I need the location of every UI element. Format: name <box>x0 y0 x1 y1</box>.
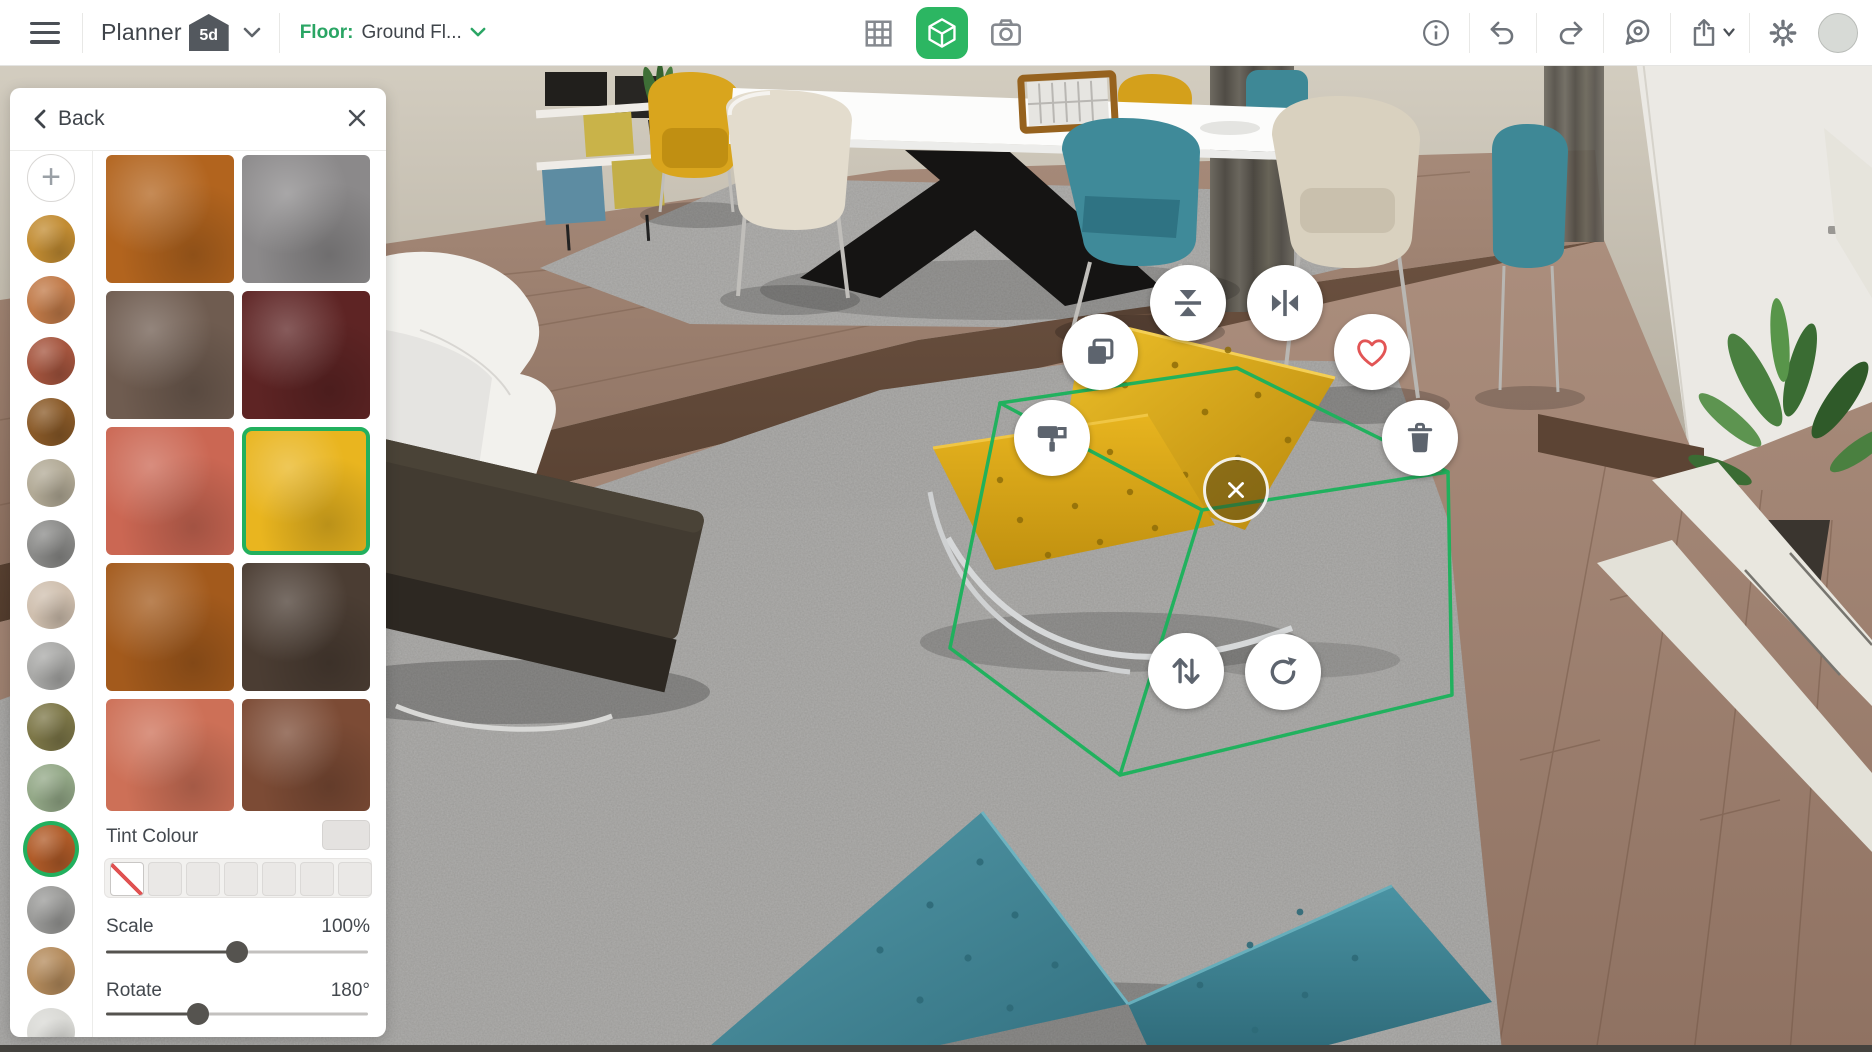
divider <box>82 13 83 53</box>
texture-swatch-maroon-leather[interactable] <box>242 291 370 419</box>
rotate-value: 180° <box>331 980 370 1002</box>
divider <box>1536 13 1537 53</box>
chevron-down-icon <box>243 27 261 39</box>
rotate-slider[interactable] <box>106 1003 368 1025</box>
cube-3d-icon <box>923 14 961 52</box>
flip-vertical-button[interactable] <box>1150 265 1226 341</box>
texture-swatch-mottled-brown-leather[interactable] <box>242 699 370 811</box>
rotate-label: Rotate <box>106 980 162 1002</box>
panel-close-button[interactable] <box>340 105 368 133</box>
divider <box>1749 13 1750 53</box>
texture-swatch-amber-leather[interactable] <box>106 563 234 691</box>
back-label: Back <box>58 107 105 131</box>
tint-swatch-tint-4[interactable] <box>224 862 258 896</box>
texture-column: + <box>10 150 93 1037</box>
texture-swatch-brown-suede[interactable] <box>106 291 234 419</box>
redo-button[interactable] <box>1551 0 1589 65</box>
camera-icon <box>987 14 1025 52</box>
rotate-button[interactable] <box>1245 634 1321 710</box>
app-badge: 5d <box>189 14 229 51</box>
info-button[interactable] <box>1417 0 1455 65</box>
texture-swatch-red-brick[interactable] <box>27 337 75 385</box>
rotate-icon <box>1264 653 1302 691</box>
divider <box>279 13 280 53</box>
texture-swatch-grey-gravel[interactable] <box>27 520 75 568</box>
tint-swatch-tint-5[interactable] <box>262 862 296 896</box>
scale-slider[interactable] <box>106 941 368 963</box>
texture-swatch-tan-leather[interactable] <box>106 155 234 283</box>
texture-swatch-gold-stucco[interactable] <box>27 215 75 263</box>
tint-swatch-tint-7[interactable] <box>338 862 372 896</box>
panel-header: Back <box>10 88 386 151</box>
texture-swatch-green-medallion[interactable] <box>27 703 75 751</box>
paint-roller-icon <box>1033 419 1071 457</box>
texture-swatch-dark-brown-leather[interactable] <box>242 563 370 691</box>
floor-selector[interactable]: Floor: Ground Fl... <box>300 22 486 44</box>
deselect-button[interactable] <box>1203 457 1269 523</box>
gear-icon <box>1766 16 1800 50</box>
slider-handle[interactable] <box>187 1003 209 1025</box>
feedback-button[interactable] <box>1618 0 1656 65</box>
slider-fill <box>106 951 237 954</box>
snapshot-button[interactable] <box>980 7 1032 59</box>
close-x-icon <box>1221 475 1251 505</box>
tint-options-row <box>104 858 372 898</box>
divider <box>1670 13 1671 53</box>
export-button[interactable] <box>1685 0 1723 65</box>
material-paint-button[interactable] <box>1014 400 1090 476</box>
info-icon <box>1419 16 1453 50</box>
back-button[interactable]: Back <box>32 107 105 131</box>
copy-icon <box>1081 333 1119 371</box>
scale-label: Scale <box>106 916 154 938</box>
texture-swatch-yellow-leather[interactable] <box>242 427 370 555</box>
floor-value: Ground Fl... <box>362 22 462 44</box>
texture-swatch-salmon-leather[interactable] <box>106 699 234 811</box>
tint-current-swatch[interactable] <box>322 820 370 850</box>
flip-horizontal-icon <box>1266 284 1304 322</box>
chevron-down-icon <box>470 27 486 38</box>
tint-swatch-tint-2[interactable] <box>148 862 182 896</box>
grid-2d-icon <box>860 15 896 51</box>
undo-button[interactable] <box>1484 0 1522 65</box>
topbar: Planner 5d Floor: Ground Fl... <box>0 0 1872 66</box>
slider-fill <box>106 1013 198 1016</box>
texture-swatch-white-marble[interactable] <box>27 1008 75 1037</box>
close-icon <box>346 107 368 129</box>
texture-swatch-pebbles[interactable] <box>27 459 75 507</box>
redo-icon <box>1553 16 1587 50</box>
flip-horizontal-button[interactable] <box>1247 265 1323 341</box>
chevron-down-icon <box>1723 28 1735 37</box>
delete-button[interactable] <box>1382 400 1458 476</box>
hamburger-icon <box>30 22 60 44</box>
profile-avatar[interactable] <box>1818 13 1858 53</box>
flip-vertical-icon <box>1169 284 1207 322</box>
view-3d-button[interactable] <box>916 7 968 59</box>
view-2d-button[interactable] <box>852 7 904 59</box>
undo-icon <box>1486 16 1520 50</box>
divider <box>1469 13 1470 53</box>
project-menu[interactable]: Planner 5d <box>101 14 279 51</box>
floor-label: Floor: <box>300 22 354 44</box>
texture-swatch-wood-planks[interactable] <box>27 398 75 446</box>
divider <box>1603 13 1604 53</box>
scale-value: 100% <box>321 916 370 938</box>
texture-swatch-beige-plaid[interactable] <box>27 581 75 629</box>
chevron-left-icon <box>32 108 48 130</box>
settings-button[interactable] <box>1764 0 1802 65</box>
app-name: Planner <box>101 19 182 46</box>
feedback-bubble-icon <box>1620 16 1654 50</box>
heart-icon <box>1353 333 1391 371</box>
material-panel: Back + Tint Colour Scale 100% Rotate 180… <box>10 88 386 1037</box>
texture-swatch-mosaic-tile[interactable] <box>27 276 75 324</box>
tint-colour-label: Tint Colour <box>106 826 198 848</box>
tint-swatch-no-tint[interactable] <box>110 862 144 896</box>
texture-swatch-grey-stone[interactable] <box>27 886 75 934</box>
move-vertical-button[interactable] <box>1148 633 1224 709</box>
trash-icon <box>1401 419 1439 457</box>
up-down-arrows-icon <box>1167 652 1205 690</box>
texture-swatch-grey-marble[interactable] <box>27 642 75 690</box>
texture-swatch-light-wood[interactable] <box>27 947 75 995</box>
texture-swatch-grey-leather[interactable] <box>242 155 370 283</box>
duplicate-button[interactable] <box>1062 314 1138 390</box>
bottom-edge-strip <box>0 1045 1872 1052</box>
texture-swatch-orange-leather[interactable] <box>27 825 75 873</box>
texture-grid <box>106 155 370 811</box>
add-texture-button[interactable]: + <box>27 154 75 202</box>
tint-swatch-tint-6[interactable] <box>300 862 334 896</box>
tint-swatch-tint-3[interactable] <box>186 862 220 896</box>
favourite-button[interactable] <box>1334 314 1410 390</box>
export-icon <box>1687 16 1721 50</box>
main-menu-button[interactable] <box>0 22 60 44</box>
texture-swatch-green-vine-stone[interactable] <box>27 764 75 812</box>
slider-handle[interactable] <box>226 941 248 963</box>
texture-swatch-coral-leather[interactable] <box>106 427 234 555</box>
